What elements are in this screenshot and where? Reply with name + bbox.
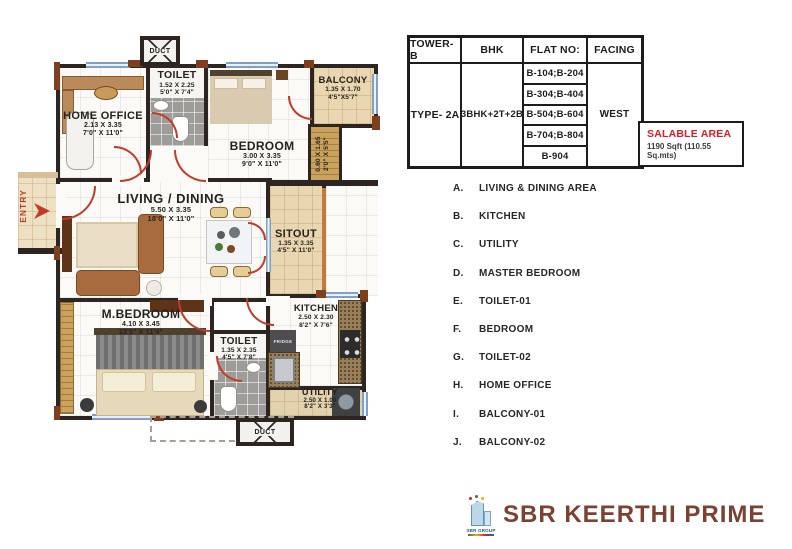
flat-number-cell: B-704;B-804 [523, 125, 587, 146]
sbr-group-logo: SBR GROUP [466, 496, 496, 540]
duct-bottom: DUCT [236, 418, 294, 446]
logo-group-text: SBR GROUP [466, 528, 496, 533]
wall-accent [372, 116, 380, 130]
table-header-bhk: BHK [461, 37, 523, 63]
sofa [138, 214, 164, 274]
legend-label: TOILET-01 [479, 296, 531, 307]
logo-flag-dot [481, 497, 484, 500]
washbasin [153, 100, 169, 111]
flat-number-cell: B-504;B-604 [523, 105, 587, 126]
plate [217, 231, 225, 239]
legend-label: UTILITY [479, 239, 519, 250]
sofa [76, 270, 140, 296]
legend-key: A. [453, 183, 479, 194]
sink [273, 357, 295, 383]
legend-key: F. [453, 324, 479, 335]
fridge-label: FRIDGE [274, 339, 293, 344]
legend-item: F.BEDROOM [453, 324, 597, 335]
legend-item: H.HOME OFFICE [453, 380, 597, 391]
salable-area-title: SALABLE AREA [647, 128, 742, 140]
wall-accent [54, 62, 60, 90]
side-table [276, 70, 288, 80]
window [86, 62, 130, 68]
wall-accent [196, 60, 208, 68]
label-balcony: BALCONY 1.35 X 1.70 4'5"X5'7" [310, 76, 376, 101]
label-utility: UTILITY 2.50 X 1.00 8'2" X 3'3" [282, 388, 358, 411]
legend-key: H. [453, 380, 479, 391]
logo-flag-dot [469, 497, 472, 500]
room-legend: A.LIVING & DINING AREA B.KITCHEN C.UTILI… [453, 183, 597, 448]
logo-flag-dot [475, 495, 478, 498]
legend-key: B. [453, 211, 479, 222]
legend-item: A.LIVING & DINING AREA [453, 183, 597, 194]
washbasin [246, 362, 261, 373]
window [226, 62, 278, 68]
rug [76, 222, 138, 268]
window [362, 392, 368, 416]
side-stool [194, 400, 207, 413]
bowl [229, 227, 240, 238]
table-header-facing: FACING [587, 37, 642, 63]
bhk-cell: 3BHK+2T+2B [461, 63, 523, 167]
fridge: FRIDGE [270, 330, 296, 352]
logo-color-stripe [468, 534, 494, 536]
label-living-dining: LIVING / DINING 5.50 X 3.35 18'0" X 11'0… [96, 192, 246, 223]
side-stool [146, 280, 162, 296]
label-sitout: SITOUT 1.35 X 3.35 4'5" X 11'0" [268, 228, 324, 254]
legend-item: I.BALCONY-01 [453, 409, 597, 420]
bed-blanket [96, 335, 204, 369]
wall-accent [304, 60, 314, 68]
project-title: SBR KEERTHI PRIME [503, 501, 765, 529]
flat-spec-table: TOWER-B BHK FLAT NO: FACING TYPE- 2A 3BH… [407, 35, 644, 169]
office-chair [94, 86, 118, 100]
legend-key: J. [453, 437, 479, 448]
floorplan-brochure-page: FRIDGE DUCT DUCT HOME OFFICE 2.13 X 3.35… [0, 0, 792, 549]
label-bedroom: BEDROOM 3.00 X 3.35 9'0" X 11'0" [214, 140, 310, 169]
legend-key: I. [453, 409, 479, 420]
duct-label: DUCT [252, 429, 277, 436]
pillow [152, 372, 196, 392]
table-header-flatno: FLAT NO: [523, 37, 587, 63]
wall-accent [54, 246, 60, 260]
legend-key: E. [453, 296, 479, 307]
legend-item: E.TOILET-01 [453, 296, 597, 307]
flat-number-cell: B-104;B-204 [523, 63, 587, 84]
legend-item: G.TOILET-02 [453, 352, 597, 363]
salable-area-value: 1190 Sqft (110.55 Sq.mts) [647, 142, 742, 160]
facing-cell: WEST [587, 63, 642, 167]
dining-table [206, 220, 252, 264]
label-wardrobe-dims: 0.60 X 1.65 2'0" X 5'5" [315, 126, 335, 182]
legend-label: BALCONY-01 [479, 409, 545, 420]
dining-chair [210, 266, 228, 277]
exterior-open-area [326, 184, 378, 296]
legend-item: J.BALCONY-02 [453, 437, 597, 448]
side-stool [80, 398, 94, 412]
legend-item: B.KITCHEN [453, 211, 597, 222]
label-toilet-1: TOILET 1.52 X 2.25 5'0" X 7'4" [146, 70, 208, 96]
wardrobe [60, 302, 74, 414]
legend-label: BALCONY-02 [479, 437, 545, 448]
pillow [242, 78, 266, 89]
flat-number-cell: B-304;B-404 [523, 84, 587, 105]
legend-label: MASTER BEDROOM [479, 268, 580, 279]
duct-label: DUCT [147, 48, 172, 55]
toilet-seat [220, 386, 237, 412]
legend-label: BEDROOM [479, 324, 533, 335]
tower-type-cell: TYPE- 2A [409, 63, 461, 167]
label-kitchen: KITCHEN 2.50 X 2.30 8'2" X 7'6" [276, 304, 356, 329]
door-arc-kitchen [246, 298, 274, 326]
table-header-tower: TOWER-B [409, 37, 461, 63]
legend-label: TOILET-02 [479, 352, 531, 363]
stove [340, 330, 360, 358]
legend-key: D. [453, 268, 479, 279]
legend-label: KITCHEN [479, 211, 526, 222]
legend-key: C. [453, 239, 479, 250]
pillow [214, 78, 238, 89]
label-master-bedroom: M.BEDROOM 4.10 X 3.45 13'5" X 11'4" [76, 308, 206, 337]
legend-label: HOME OFFICE [479, 380, 552, 391]
legend-item: D.MASTER BEDROOM [453, 268, 597, 279]
duct-top: DUCT [140, 36, 180, 66]
legend-key: G. [453, 352, 479, 363]
label-toilet-2: TOILET 1.35 X 2.35 4'5" X 7'8" [210, 336, 268, 361]
logo-annex-shape [484, 511, 491, 526]
flat-number-cell: B-904 [523, 146, 587, 167]
entry-label: ENTRY [18, 176, 30, 236]
logo-tower-shape [471, 501, 484, 526]
tv-unit [62, 216, 72, 272]
legend-item: C.UTILITY [453, 239, 597, 250]
legend-label: LIVING & DINING AREA [479, 183, 597, 194]
salad-bowl [215, 243, 223, 251]
bowl [227, 245, 235, 253]
wall-accent [316, 290, 326, 298]
label-home-office: HOME OFFICE 2.13 X 3.35 7'0" X 11'0" [58, 110, 148, 137]
salable-area-box: SALABLE AREA 1190 Sqft (110.55 Sq.mts) [638, 121, 744, 167]
pillow [102, 372, 146, 392]
